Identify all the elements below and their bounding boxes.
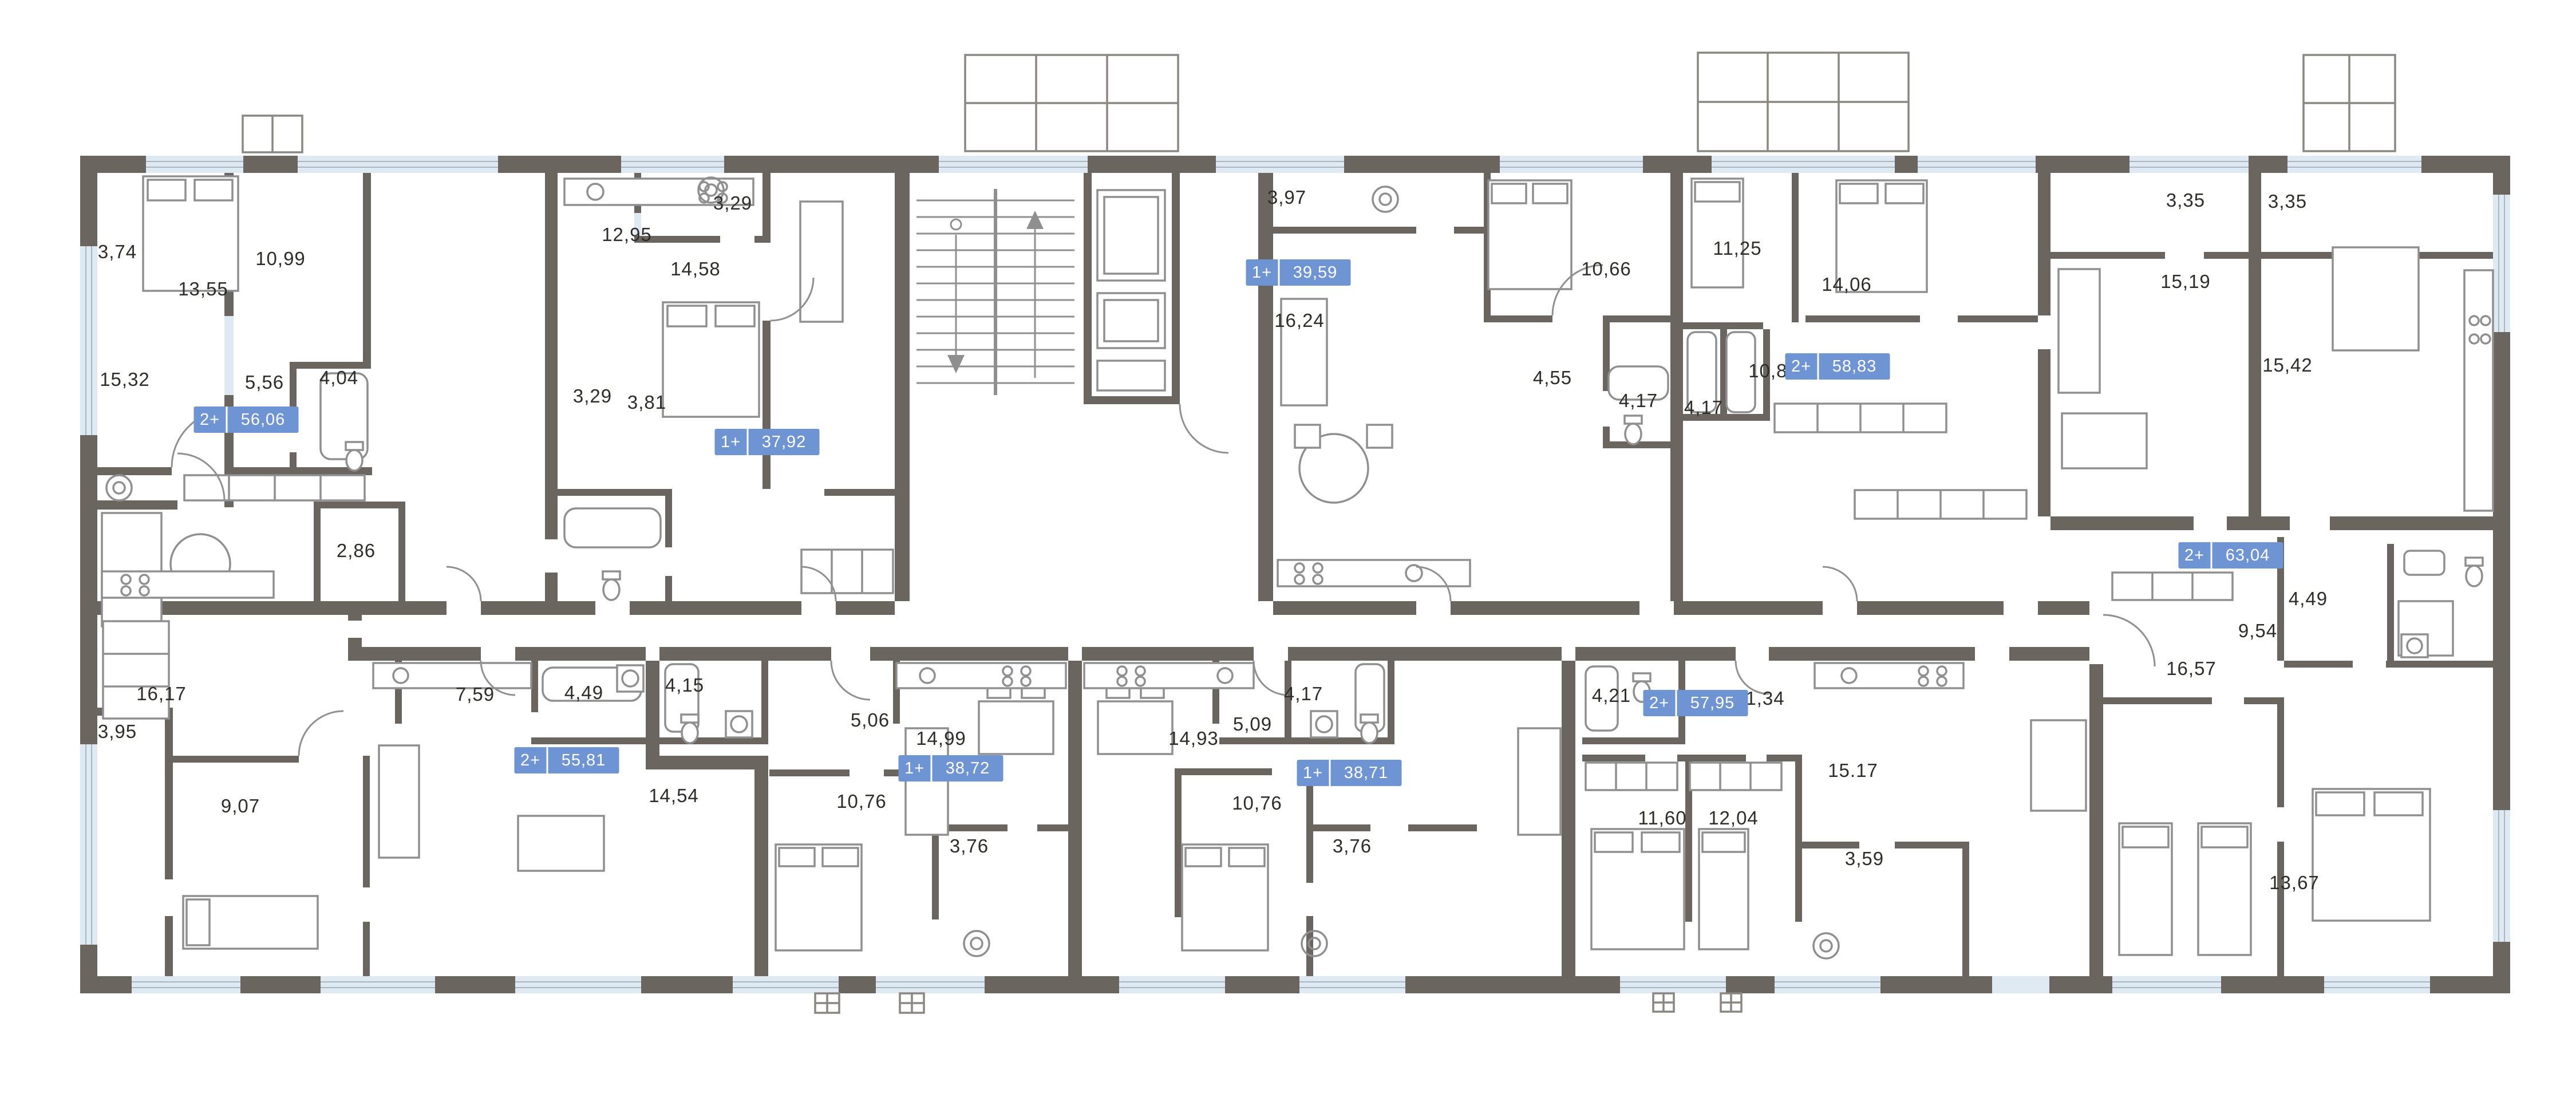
apartment-type: 2+ [1643, 690, 1677, 716]
room-area-label: 4,49 [2289, 588, 2328, 610]
apartment-area: 38,72 [933, 755, 1003, 782]
apartment-area: 37,92 [749, 429, 820, 455]
room-area-label: 15,19 [2160, 271, 2211, 293]
room-area-label: 9,54 [2238, 620, 2277, 642]
apartment-area: 56,06 [228, 406, 299, 433]
room-area-label: 14,54 [649, 785, 699, 807]
room-area-label: 3,74 [98, 241, 137, 263]
room-area-label: 3,76 [950, 835, 989, 857]
room-area-label: 4,17 [1684, 397, 1723, 419]
room-area-label: 4,17 [1284, 683, 1323, 705]
room-area-label: 14,06 [1822, 274, 1872, 295]
room-area-label: 3,81 [627, 392, 666, 413]
room-area-label: 3,29 [713, 192, 752, 214]
room-area-label: 14,58 [670, 258, 721, 280]
room-area-label: 3,95 [98, 721, 137, 743]
apartment-badge[interactable]: 1+38,71 [1297, 760, 1402, 786]
room-area-label: 3,97 [1267, 187, 1306, 208]
room-area-label: 16,24 [1274, 310, 1325, 331]
room-area-label: 13,55 [178, 278, 228, 300]
room-area-label: 3,35 [2268, 191, 2307, 212]
room-area-label: 14,99 [916, 728, 966, 749]
room-area-label: 12,04 [1708, 807, 1759, 829]
apartment-area: 38,71 [1331, 760, 1402, 786]
apartment-type: 1+ [899, 755, 933, 782]
room-area-label: 3,35 [2166, 190, 2205, 211]
room-area-label: 2,86 [337, 540, 376, 562]
room-area-label: 11,25 [1713, 238, 1761, 259]
room-area-label: 5,09 [1233, 713, 1272, 735]
apartment-type: 2+ [1785, 353, 1819, 380]
room-area-label: 15,32 [100, 369, 150, 390]
apartment-type: 1+ [1297, 760, 1331, 786]
room-area-label: 4,49 [564, 682, 603, 704]
room-area-label: 3,59 [1845, 848, 1884, 870]
apartment-badge[interactable]: 1+38,72 [899, 755, 1003, 782]
room-area-label: 4,04 [319, 367, 358, 389]
apartment-type: 1+ [1246, 259, 1280, 286]
room-area-label: 16,57 [2166, 658, 2217, 680]
apartment-type: 1+ [715, 429, 749, 455]
room-area-label: 10,99 [255, 248, 306, 270]
room-area-label: 4,17 [1619, 390, 1658, 412]
apartment-badge[interactable]: 2+57,95 [1643, 690, 1748, 716]
apartment-area: 39,59 [1280, 259, 1351, 286]
room-area-label: 7,59 [456, 684, 495, 705]
room-area-label: 12,95 [602, 224, 652, 246]
apartment-area: 63,04 [2212, 542, 2283, 569]
apartment-badge[interactable]: 2+58,83 [1785, 353, 1890, 380]
apartment-badge[interactable]: 1+37,92 [715, 429, 820, 455]
room-area-label: 5,06 [851, 709, 890, 731]
apartment-badge[interactable]: 2+56,06 [194, 406, 299, 433]
furniture [102, 176, 2493, 958]
room-area-label: 4,55 [1533, 367, 1572, 389]
apartment-area: 57,95 [1677, 690, 1748, 716]
room-area-label: 13,67 [2269, 872, 2320, 894]
room-area-label: 4,15 [665, 674, 704, 696]
room-area-label: 10,66 [1581, 258, 1631, 280]
room-area-label: 15.17 [1828, 760, 1878, 782]
room-area-label: 10,76 [836, 791, 887, 812]
room-area-label: 15,42 [2262, 354, 2313, 376]
apartment-area: 58,83 [1819, 353, 1890, 380]
apartment-type: 2+ [194, 406, 228, 433]
apartment-badge[interactable]: 2+63,04 [2179, 542, 2283, 569]
room-area-label: 3,29 [573, 385, 612, 407]
room-area-label: 3,76 [1333, 835, 1372, 857]
room-area-label: 14,93 [1168, 728, 1219, 749]
elevators [1097, 190, 1165, 390]
stairs [916, 189, 1074, 395]
apartment-area: 55,81 [548, 747, 619, 773]
room-area-label: 9,07 [221, 795, 260, 817]
apartment-type: 2+ [515, 747, 548, 773]
room-area-label: 5,56 [245, 372, 284, 393]
room-area-label: 11,60 [1638, 807, 1686, 829]
room-area-label: 4,21 [1592, 685, 1631, 707]
apartment-badge[interactable]: 1+39,59 [1246, 259, 1351, 286]
floor-plan: 3,7413,5510,9915,325,564,042,862+56,0612… [0, 0, 2576, 1113]
room-area-label: 10,76 [1232, 792, 1282, 814]
apartment-type: 2+ [2179, 542, 2212, 569]
room-area-label: 16,17 [136, 683, 187, 705]
apartment-badge[interactable]: 2+55,81 [515, 747, 619, 773]
